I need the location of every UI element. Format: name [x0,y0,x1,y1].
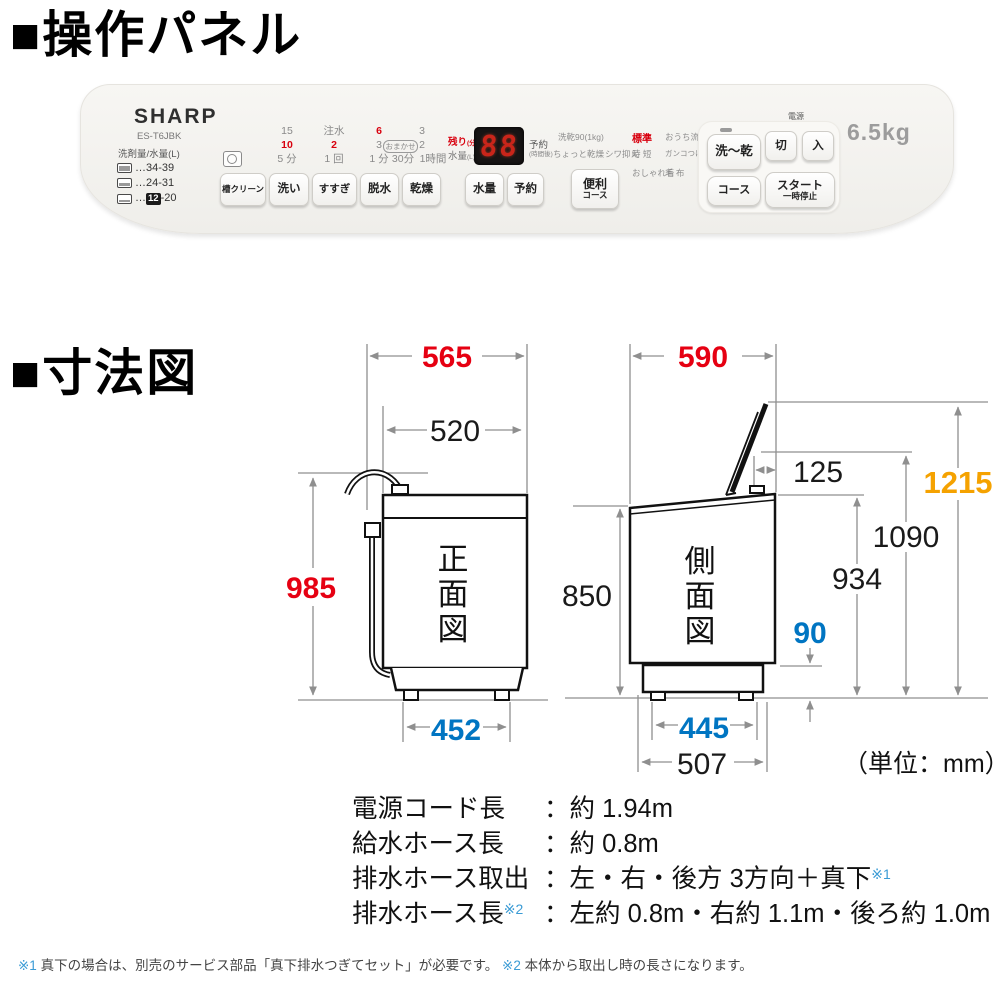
dim-side-feet: 445 [679,712,729,745]
footnote-mark-1: ※1 [18,958,37,973]
spec-row-water-hose: 給水ホース長 ：約 0.8m [352,824,997,859]
side-view-label-2: 面 [685,579,716,614]
front-view-label-3: 図 [438,612,469,647]
footnote-text-1: 真下の場合は、別売のサービス部品「真下排水つぎてセット」が必要です。 [41,958,499,973]
front-view-label-2: 面 [438,577,469,612]
front-view-label-1: 正 [438,542,469,577]
side-view-drawing: 側 面 図 590 125 1215 1090 934 850 90 445 5… [562,341,993,781]
dim-side-height-934: 934 [832,563,882,596]
dim-side-depth-base: 507 [677,748,727,781]
spec-list: 電源コード長 ：約 1.94m 給水ホース長 ：約 0.8m 排水ホース取出 ：… [352,789,997,929]
dim-side-lid: 125 [793,456,843,489]
dim-side-height-1090: 1090 [873,521,940,554]
spec-row-drain-outlet: 排水ホース取出 ：左・右・後方 3方向＋真下※1 [352,859,997,894]
dim-side-gap: 90 [793,617,826,650]
side-view-label-1: 側 [685,544,716,579]
dim-side-height-body: 850 [562,580,612,613]
side-view-label-3: 図 [685,614,716,649]
dim-side-depth-total: 590 [678,341,728,374]
dim-front-width-body: 520 [430,415,480,448]
front-view-drawing: 正 面 図 565 520 985 452 [286,341,548,747]
footnote: ※1 真下の場合は、別売のサービス部品「真下排水つぎてセット」が必要です。 ※2… [18,954,753,974]
footnote-mark-2: ※2 [502,958,521,973]
dim-front-width-total: 565 [422,341,472,374]
spec-row-drain-hose: 排水ホース長※2 ：左約 0.8m・右約 1.1m・後ろ約 1.0m [352,894,997,929]
unit-label: （単位：mm） [843,750,1000,778]
footnote-text-2: 本体から取出し時の長さになります。 [525,958,753,973]
spec-row-power-cord: 電源コード長 ：約 1.94m [352,789,997,824]
dim-front-feet: 452 [431,714,481,747]
dim-front-height: 985 [286,572,336,605]
dim-side-height-total: 1215 [924,465,993,500]
